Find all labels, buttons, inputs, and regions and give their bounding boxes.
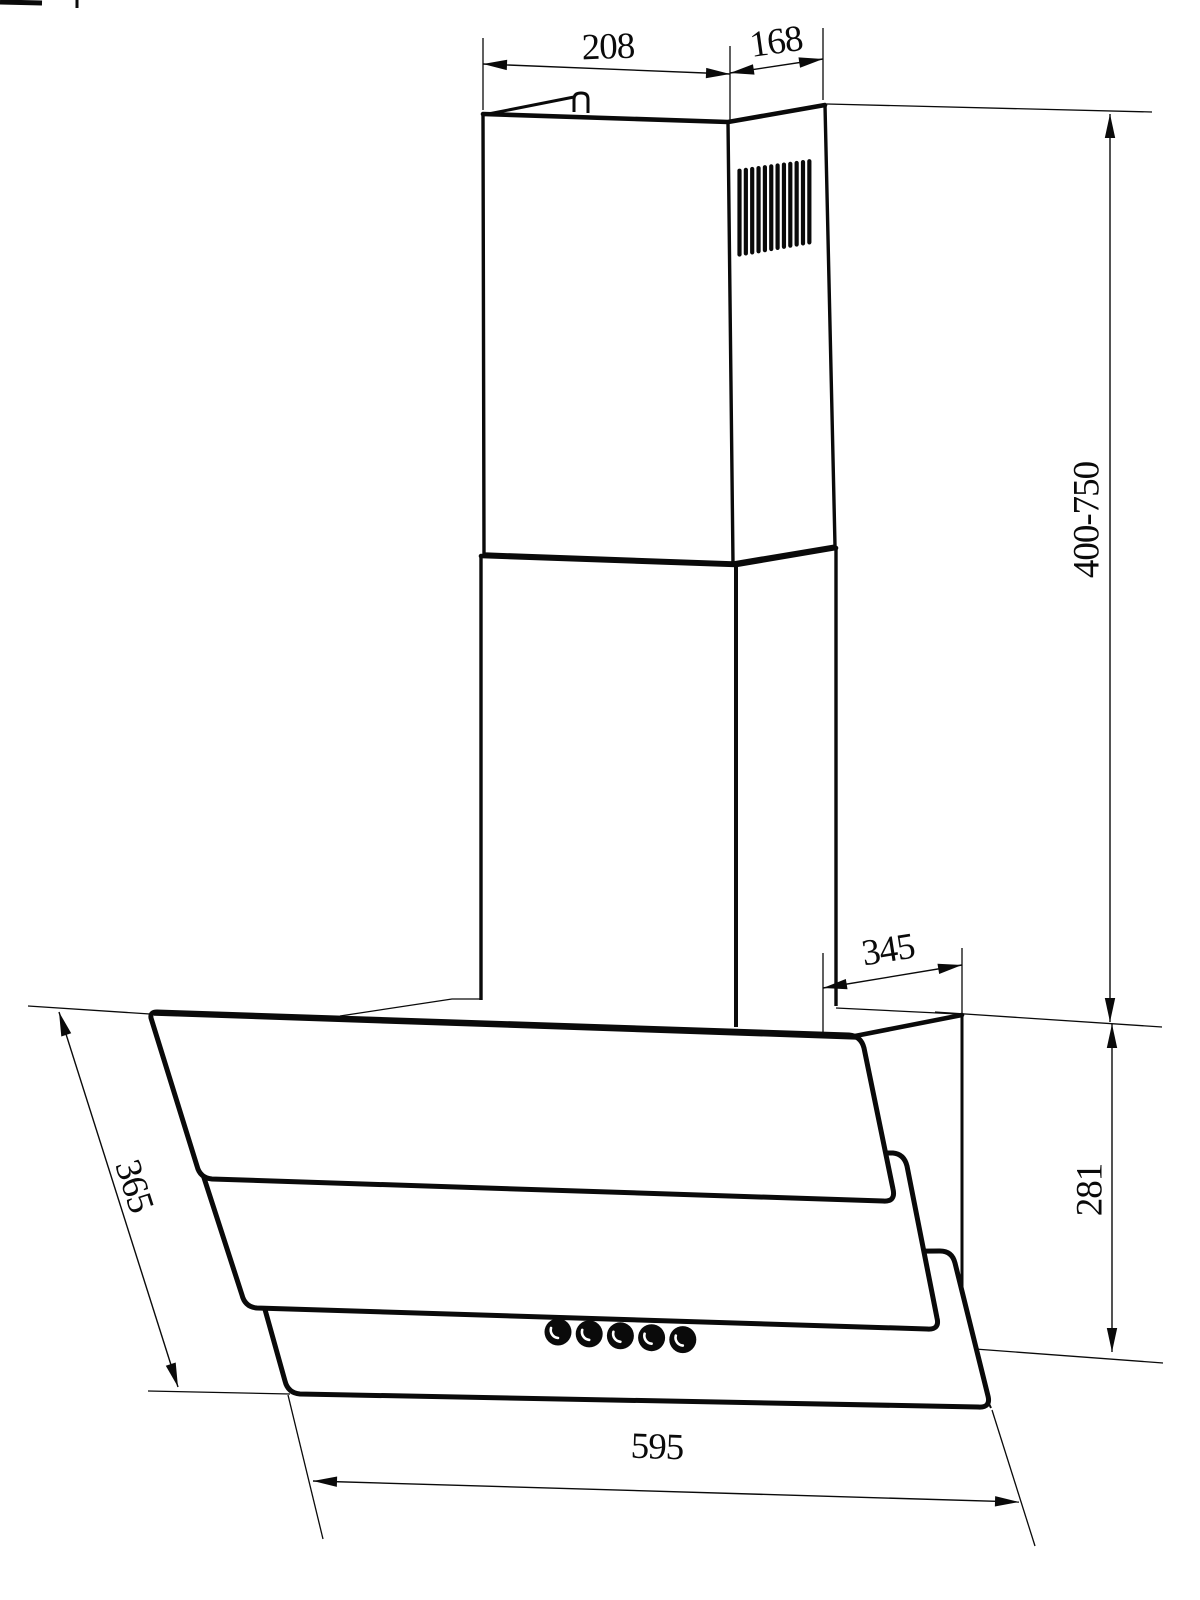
- extension-line: [992, 1410, 1035, 1546]
- technical-drawing-page: 208 168 400-750 345 281: [0, 0, 1200, 1600]
- dimension-label-chimney-depth: 168: [747, 18, 805, 66]
- dimension-label-body-height: 281: [1070, 1164, 1111, 1217]
- scan-artifact-line: [0, 2, 42, 3]
- chimney-top-edge: [483, 105, 825, 122]
- hood-top-rear-edge-left: [340, 999, 481, 1016]
- dimension-chimney-depth: 168: [730, 18, 823, 100]
- control-button: [545, 1319, 572, 1346]
- side-wall-top-edge: [855, 1015, 962, 1036]
- hood-top-rear-edge-right: [836, 1008, 958, 1014]
- dimension-line: [313, 1481, 1019, 1502]
- scan-artifacts: [0, 0, 77, 8]
- control-button: [576, 1320, 603, 1347]
- dimension-label-body-width: 595: [630, 1426, 684, 1469]
- dimension-drawing: 208 168 400-750 345 281: [0, 0, 1200, 1600]
- extension-line: [827, 104, 1152, 112]
- chimney-top-flap: [483, 93, 588, 115]
- dimension-top-depth: 345: [823, 926, 962, 1032]
- extension-line: [975, 1349, 1163, 1363]
- dimension-label-chimney-width: 208: [581, 26, 635, 69]
- dimension-label-top-depth: 345: [859, 926, 918, 975]
- glass-panel-top: [151, 1012, 894, 1201]
- extension-line: [288, 1395, 323, 1539]
- dimension-label-panel-length: 365: [106, 1155, 161, 1218]
- control-button: [669, 1326, 696, 1353]
- control-button: [607, 1322, 634, 1349]
- dimension-chimney-height-range: 400-750: [827, 104, 1152, 1022]
- chimney-joint-line: [481, 548, 836, 565]
- chimney-duct: [481, 93, 836, 1027]
- chimney-upper-front-face: [483, 114, 733, 563]
- extension-line: [935, 1012, 1162, 1027]
- dimension-body-width: 595: [288, 1395, 1035, 1546]
- extension-line: [148, 1391, 290, 1394]
- dimension-label-chimney-height-range: 400-750: [1067, 461, 1108, 578]
- control-button: [638, 1324, 665, 1351]
- vent-grille: [740, 161, 810, 254]
- extension-line: [28, 1006, 150, 1014]
- hood-body: [151, 999, 991, 1408]
